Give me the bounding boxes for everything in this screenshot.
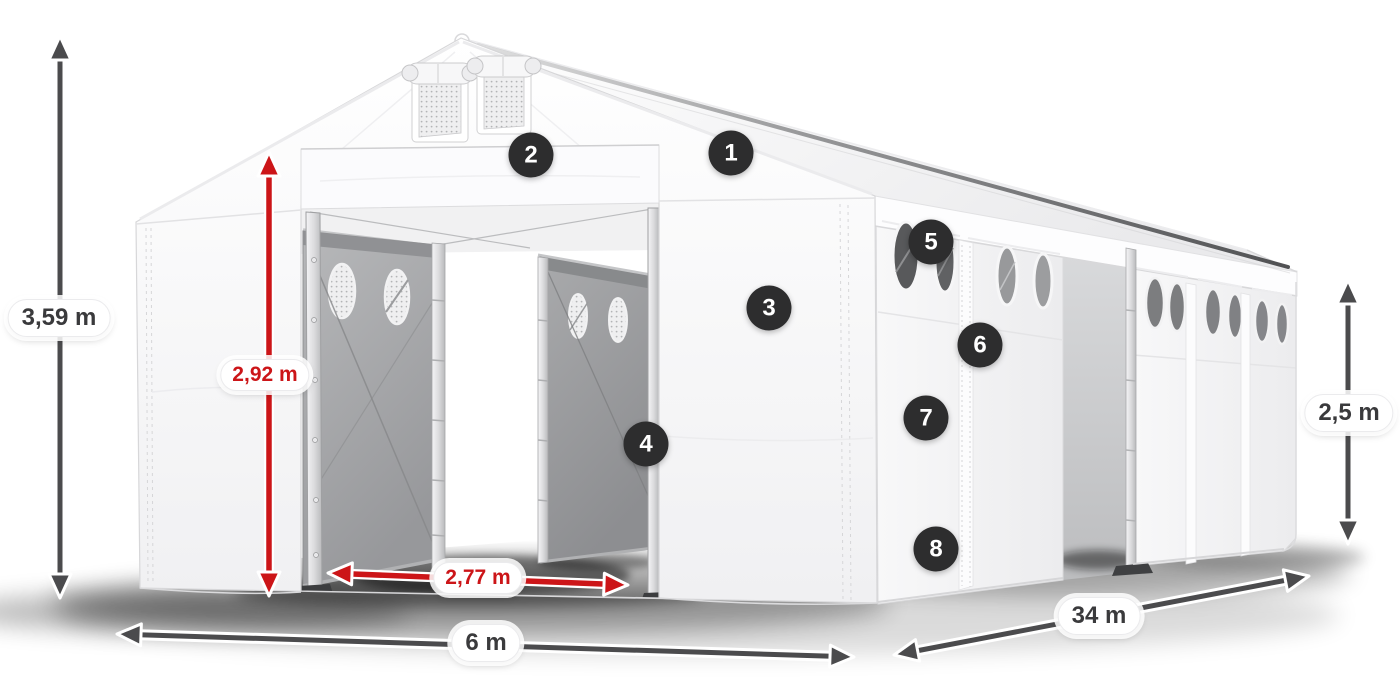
side-door-opening [1063,234,1133,580]
gable-vent-left [402,63,478,142]
dim-label-total-height: 3,59 m [8,299,111,337]
dim-label-side-length: 34 m [1058,597,1141,635]
entrance-door-leaf-back [538,257,653,563]
callout-badge-3[interactable]: 3 [747,286,792,331]
tent-illustration [0,0,1400,700]
callout-badge-7[interactable]: 7 [904,396,949,441]
dim-label-front-width: 6 m [451,624,520,662]
dim-label-entrance-width: 2,77 m [433,562,522,594]
entrance-header-beam [301,145,659,209]
callout-badge-1[interactable]: 1 [709,131,754,176]
side-door-pole [1126,248,1136,572]
tent-interior [285,199,675,605]
callout-badge-6[interactable]: 6 [958,323,1003,368]
callout-badge-2[interactable]: 2 [509,133,554,178]
gable-vent-right [467,56,541,134]
dim-label-side-height: 2,5 m [1304,394,1393,432]
diagram-canvas: 1 2 3 4 5 6 7 8 3,59 m 2,92 m 2,77 m 6 m… [0,0,1400,700]
callout-badge-5[interactable]: 5 [909,220,954,265]
callout-badge-8[interactable]: 8 [914,527,959,572]
dim-label-entrance-height: 2,92 m [220,359,309,391]
callout-badge-4[interactable]: 4 [624,422,669,467]
entrance-door-leaf-front [303,231,445,586]
